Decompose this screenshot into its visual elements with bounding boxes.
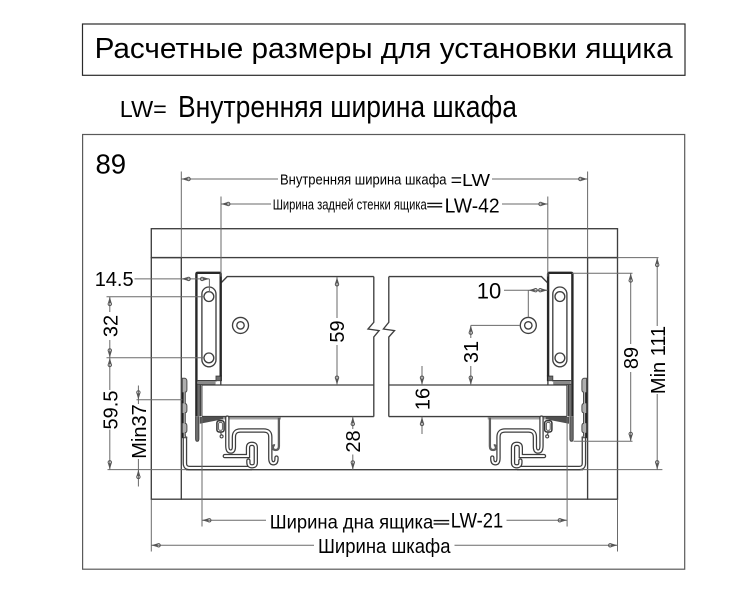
svg-text:10: 10: [477, 279, 501, 304]
svg-text:Ширина шкафа: Ширина шкафа: [318, 535, 451, 558]
svg-text:59.5: 59.5: [100, 391, 122, 430]
svg-text:31: 31: [461, 341, 483, 363]
svg-text:LW=: LW=: [120, 96, 167, 122]
svg-text:LW-21: LW-21: [451, 510, 503, 533]
svg-text:89: 89: [621, 347, 643, 369]
svg-text:Ширина задней стенки ящика: Ширина задней стенки ящика: [273, 196, 427, 213]
svg-text:Внутренняя ширина шкафа: Внутренняя ширина шкафа: [178, 89, 518, 124]
svg-text:=LW: =LW: [451, 170, 491, 190]
svg-text:89: 89: [96, 149, 127, 180]
svg-text:Min 111: Min 111: [648, 326, 670, 394]
svg-text:59: 59: [327, 320, 349, 342]
svg-text:Min37: Min37: [129, 404, 151, 458]
svg-text:Внутренняя ширина шкафа: Внутренняя ширина шкафа: [280, 171, 447, 188]
svg-text:16: 16: [413, 388, 435, 410]
svg-text:28: 28: [343, 430, 365, 452]
svg-text:14.5: 14.5: [95, 269, 134, 291]
svg-text:Расчетные размеры для установк: Расчетные размеры для установки ящика: [95, 33, 673, 65]
svg-text:LW-42: LW-42: [445, 195, 500, 217]
svg-text:Ширина дна ящика: Ширина дна ящика: [270, 512, 434, 533]
svg-text:32: 32: [100, 315, 122, 337]
